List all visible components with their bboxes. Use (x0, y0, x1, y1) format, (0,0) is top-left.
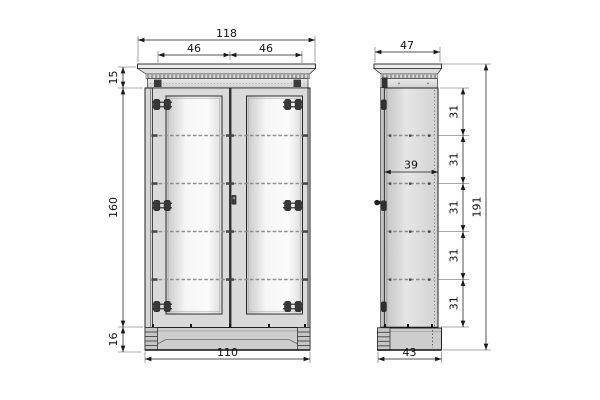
dim-plinth-width: 110 (217, 346, 238, 359)
dim-overall-height: 191 (471, 197, 484, 218)
side-frieze (381, 78, 438, 89)
frieze (148, 79, 309, 88)
dim-shelf-spacing-2: 31 (448, 153, 461, 167)
dim-shelf-spacing-5: 31 (448, 296, 461, 310)
dim-left-door-width: 46 (187, 42, 201, 55)
dim-cornice-depth: 47 (400, 39, 414, 52)
right-door-panel (247, 96, 303, 314)
side-cornice (374, 64, 442, 79)
dim-right-door-width: 46 (259, 42, 273, 55)
dim-overall-width: 118 (216, 27, 237, 40)
dim-shelf-spacing-4: 31 (448, 249, 461, 263)
hinge-top-plate-left (154, 80, 162, 87)
hinge-top-plate (382, 78, 388, 88)
dentil-molding (381, 74, 438, 79)
dim-body-height: 160 (107, 197, 120, 218)
dim-cornice-height: 15 (107, 71, 120, 85)
side-view: 47 39 31 31 31 31 31 191 43 (374, 39, 491, 363)
dim-shelf-spacing-3: 31 (448, 201, 461, 215)
front-view: 118 46 46 15 160 16 110 (107, 27, 316, 363)
keyhole-icon (232, 195, 237, 205)
dim-plinth-depth: 43 (403, 346, 417, 359)
dim-plinth-height: 16 (107, 333, 120, 347)
side-panel (381, 88, 439, 328)
left-door-panel (166, 96, 222, 314)
hinge-top-plate-right (294, 80, 302, 87)
cornice (138, 64, 316, 79)
dim-interior-depth: 39 (404, 159, 418, 172)
technical-drawing: 118 46 46 15 160 16 110 (0, 0, 600, 400)
dim-shelf-spacing-1: 31 (448, 105, 461, 119)
